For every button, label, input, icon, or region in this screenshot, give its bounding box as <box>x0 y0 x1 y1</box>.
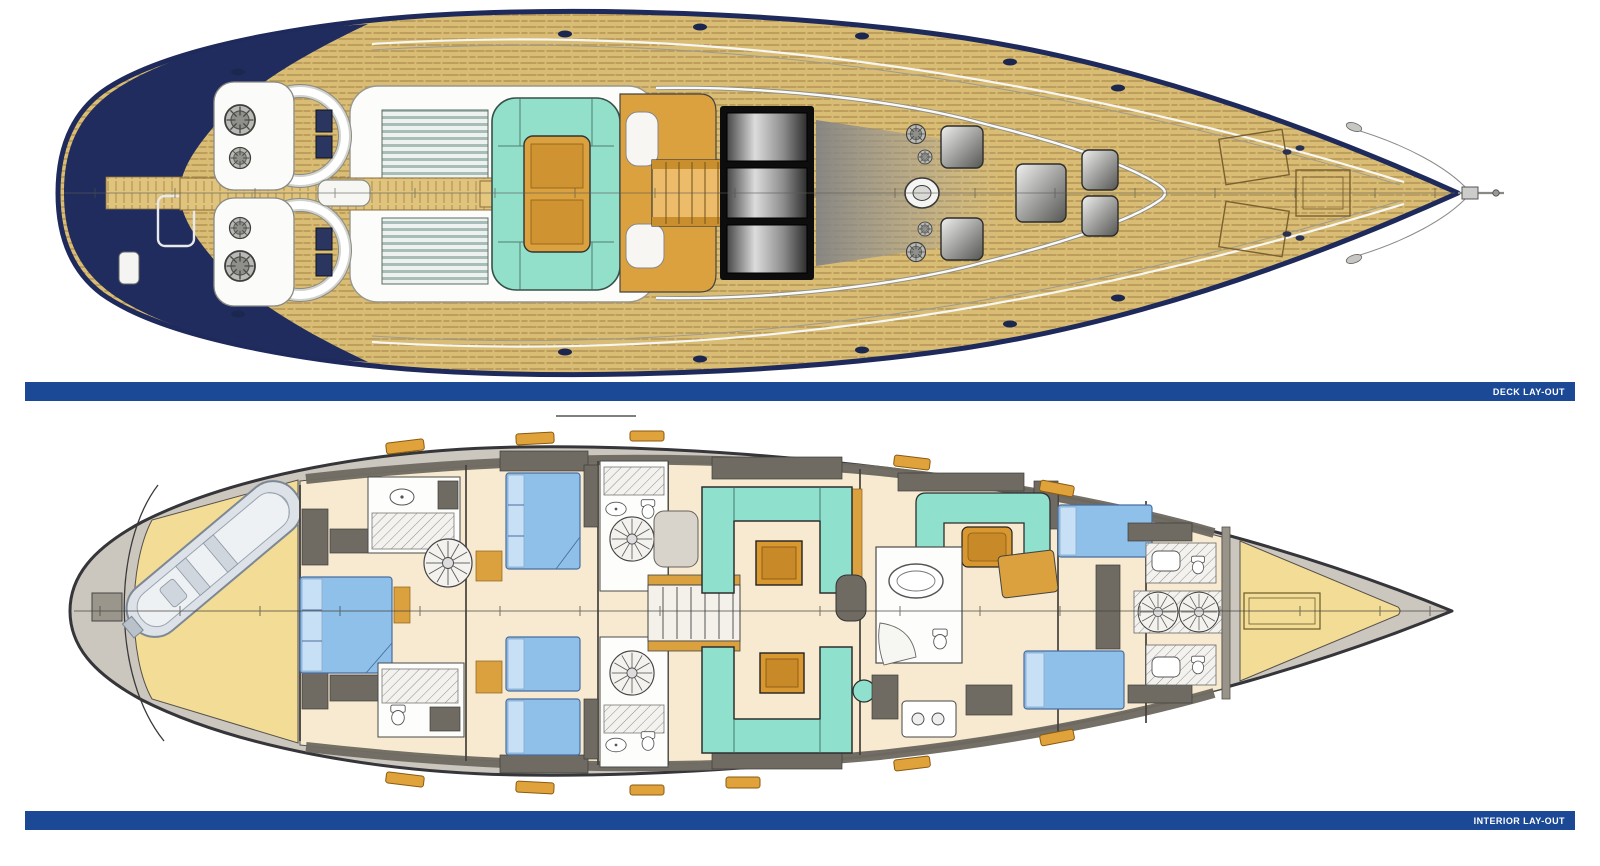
deck-layout-label: DECK LAY-OUT <box>1493 387 1575 397</box>
aft-bathroom-starboard <box>378 663 464 737</box>
winch <box>918 222 932 236</box>
cockpit-table <box>524 136 590 252</box>
deck-plan <box>0 0 1600 380</box>
scale-line <box>556 415 636 417</box>
cockpit-bench-port <box>382 110 488 178</box>
bowsprit-anchor-fitting <box>1458 187 1504 199</box>
helm-pod-port <box>214 82 294 190</box>
collision-bulkhead <box>1222 527 1230 699</box>
winch <box>225 105 255 135</box>
winch <box>230 218 251 239</box>
mast-post <box>836 575 866 621</box>
winch <box>907 243 926 262</box>
owner-bathroom <box>876 547 962 665</box>
spiral-stair <box>610 651 654 695</box>
yacht-layout-sheet: DECK LAY-OUT <box>0 0 1600 866</box>
spiral-vent <box>1179 592 1219 632</box>
winch <box>225 251 255 281</box>
winch <box>230 148 251 169</box>
cockpit-bench-starboard <box>382 218 488 284</box>
nav-desk <box>998 550 1059 599</box>
deck-layout-caption-bar: DECK LAY-OUT <box>25 382 1575 401</box>
spiral-stair <box>1138 592 1178 632</box>
interior-plan <box>0 425 1600 803</box>
washer-cabinet <box>902 701 956 737</box>
salon-table-port <box>756 541 802 585</box>
interior-layout-label: INTERIOR LAY-OUT <box>1474 816 1575 826</box>
helm-pod-starboard <box>214 198 294 306</box>
salon-table-starboard <box>760 653 804 693</box>
winch <box>918 150 932 164</box>
spiral-stair <box>610 517 654 561</box>
transom-door <box>119 252 139 284</box>
interior-layout-caption-bar: INTERIOR LAY-OUT <box>25 811 1575 830</box>
winch <box>907 125 926 144</box>
stern-step <box>92 593 122 621</box>
spiral-vent <box>424 539 472 587</box>
